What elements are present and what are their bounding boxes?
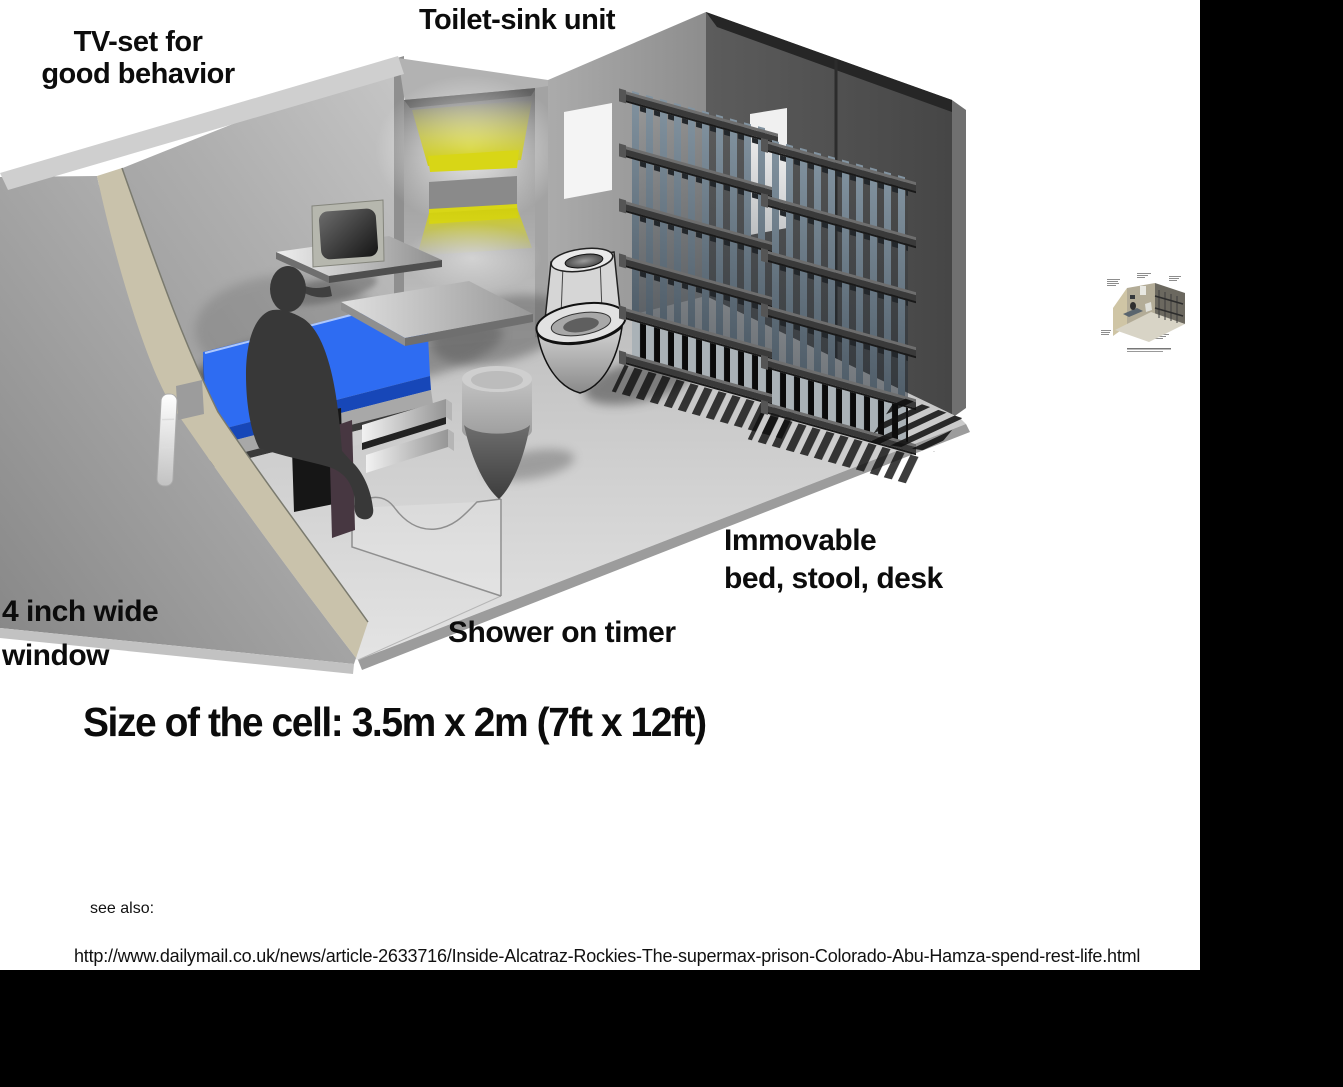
label-window: 4 inch wide window [2, 590, 158, 677]
letterbox-right [1200, 0, 1343, 1087]
label-shower: Shower on timer [448, 616, 676, 650]
diagram-canvas: TV-set for good behavior Toilet-sink uni… [0, 0, 1200, 970]
tv-set [312, 200, 384, 267]
label-window-line2: window [2, 634, 158, 678]
infographic-page: TV-set for good behavior Toilet-sink uni… [0, 0, 1343, 1087]
cell-diagram-illustration [0, 0, 1200, 970]
cell-size-caption: Size of the cell: 3.5m x 2m (7ft x 12ft) [83, 700, 706, 746]
label-window-line1: 4 inch wide [2, 590, 158, 634]
see-also-label: see also: [90, 900, 154, 918]
label-furniture-line1: Immovable [724, 522, 943, 560]
article-thumbnail [1097, 268, 1200, 362]
source-url: http://www.dailymail.co.uk/news/article-… [74, 946, 1140, 966]
label-toilet-sink: Toilet-sink unit [419, 4, 615, 36]
tv-screen [318, 208, 378, 260]
wall-vent-panel [564, 103, 612, 199]
label-tv: TV-set for good behavior [0, 26, 276, 91]
label-tv-line2: good behavior [0, 58, 276, 90]
cell-bars-left [612, 85, 795, 442]
label-furniture-line2: bed, stool, desk [724, 560, 943, 598]
letterbox-bottom [0, 970, 1343, 1087]
label-furniture: Immovable bed, stool, desk [724, 522, 943, 599]
label-tv-line1: TV-set for [0, 26, 276, 58]
